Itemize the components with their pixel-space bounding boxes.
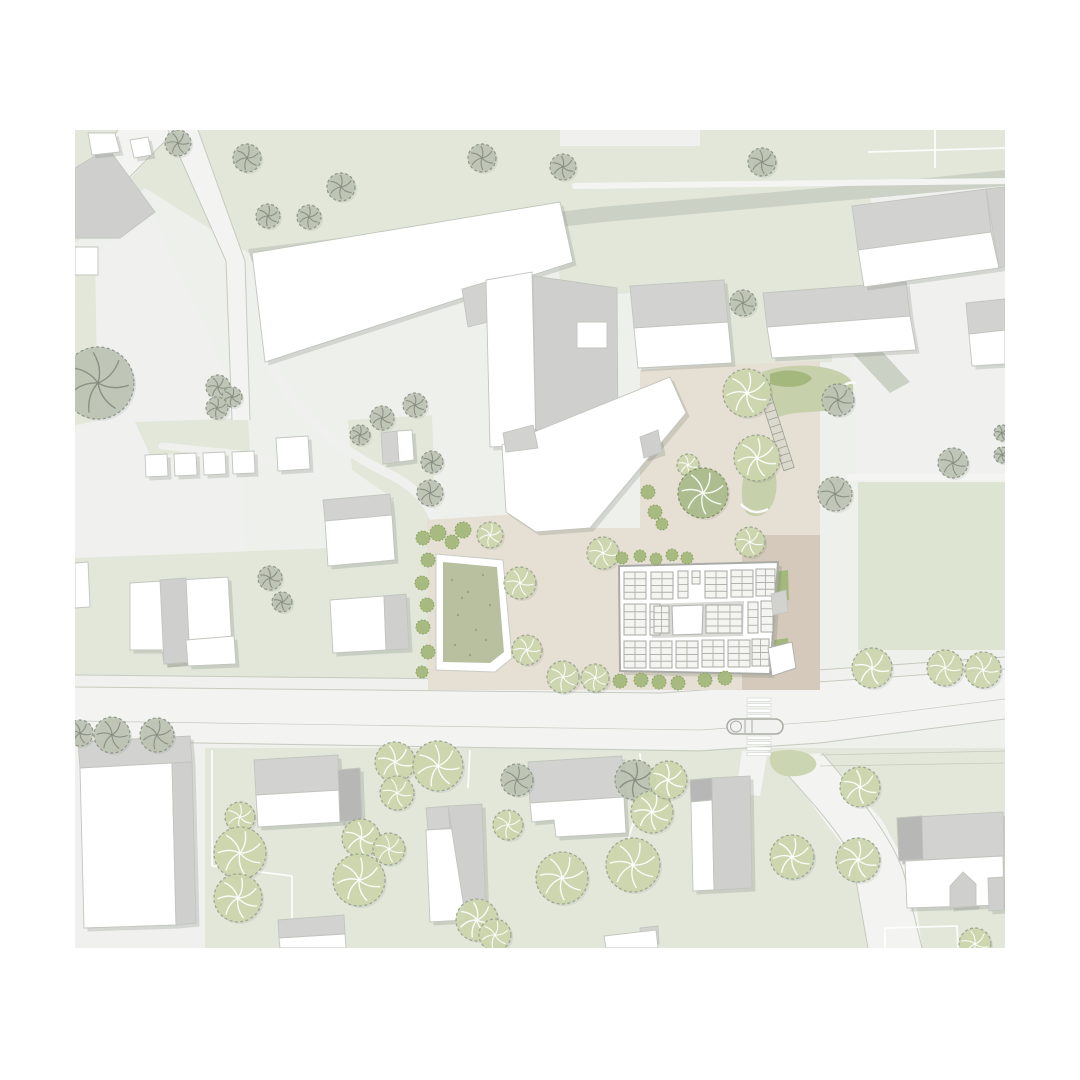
garden-speckle [489,604,491,606]
solar-panel-block [654,606,669,633]
meadow [858,482,1005,650]
bush-icon [430,525,446,541]
building-part [130,137,152,158]
bush-icon [641,485,655,499]
solar-panel-block [728,640,750,667]
garden-speckle [482,574,484,576]
bush-icon [416,531,430,545]
bush-icon [671,676,685,690]
atrium-skylight [672,605,703,635]
solar-panel-block [676,641,698,668]
building-part [486,272,536,447]
building-southwest-large [78,736,200,932]
house-west-mid-2 [330,594,413,657]
building-part [232,451,255,474]
map-layers [62,130,1012,962]
building-part [254,755,340,795]
bush-icon [416,666,428,678]
building-part [186,636,236,666]
solar-panel-block [624,572,646,599]
bush-icon [698,673,712,687]
site-plan-map [0,0,1080,1080]
solar-panel-block [702,640,724,667]
bush-icon [681,552,693,564]
solar-panel-block [706,605,742,633]
solar-panel-block [624,604,646,635]
building-part [75,562,90,608]
building-part [338,768,362,822]
building-part [203,452,226,475]
building-part [80,763,176,928]
garden-plot [443,562,504,663]
building-part [397,430,414,462]
house-west-edge [75,562,90,608]
solar-panel-block [650,641,672,668]
zebra-stripe [747,742,771,745]
bush-icon [613,674,627,688]
solar-panel-block [678,571,688,598]
garden-speckle [461,597,463,599]
building-part [276,436,310,471]
zebra-stripe [747,704,771,707]
zebra-stripe [747,736,771,739]
solar-panel-block [731,570,753,597]
building-part [426,806,450,830]
building-part [174,453,197,476]
bush-icon [648,505,662,519]
bush-icon [634,673,648,687]
building-part [988,877,1004,911]
building-part [528,756,624,803]
garden-speckle [451,579,453,581]
building-part [325,515,395,566]
building-school-row-1 [630,280,736,372]
bush-icon [420,598,434,612]
house-west-mid-1 [323,494,399,570]
balcony [771,590,788,615]
house-south-edge-1 [278,915,346,948]
garden-speckle [475,629,477,631]
building-part [330,596,386,653]
garden-speckle [467,591,469,593]
solar-panel-block [752,639,769,666]
bush-icon [415,576,429,590]
house-south-5 [897,812,1008,915]
building-part [691,800,714,891]
bush-icon [421,645,435,659]
building-part [256,790,342,827]
garden-speckle [485,639,487,641]
zebra-stripe [747,753,771,756]
house-west-small [381,430,418,468]
bush-icon [666,549,678,561]
solar-panel-block [756,569,775,596]
solar-panel-block [705,571,727,598]
site-plan-page [0,0,1080,1080]
building-part [690,778,713,802]
building-part [969,330,1005,366]
building-part [577,322,607,348]
solar-panel-block [692,571,700,584]
building-part [172,762,196,925]
building-part [712,776,752,890]
building-east-edge [966,299,1009,370]
building-part [634,322,732,368]
garden-speckle [457,614,459,616]
house-south-4 [690,776,756,895]
building-school-row-2 [763,282,920,362]
solar-panel-block [748,602,758,633]
paved-top-patch [560,130,700,146]
bush-icon [616,552,628,564]
bush-icon [416,620,430,634]
building-part [384,594,409,650]
solar-panel-block [761,601,773,632]
building-wing-white [486,272,540,451]
bush-icon [718,671,732,685]
garden-speckle [469,654,471,656]
building-part [381,431,399,464]
bush-icon [421,553,435,567]
bush-icon [445,535,459,549]
garden-speckle [454,644,456,646]
zebra-stripe [747,747,771,750]
solar-panel-block [624,641,646,668]
zebra-stripe [747,715,771,718]
building-small-white [88,133,124,159]
bush-icon [652,675,666,689]
building-part [160,578,190,664]
building-part [630,280,728,328]
building-part [145,454,168,477]
bush-icon [634,550,646,562]
new-building-solar-roof [619,562,796,678]
bush-icon [656,518,668,530]
zebra-stripe [747,709,771,712]
building-part [897,816,923,861]
building-part [88,133,120,155]
bush-icon [650,553,662,565]
zebra-stripe [747,698,771,701]
solar-panel-block [651,572,673,599]
building-part [966,299,1005,334]
bush-icon [455,522,471,538]
building-part [75,247,98,275]
